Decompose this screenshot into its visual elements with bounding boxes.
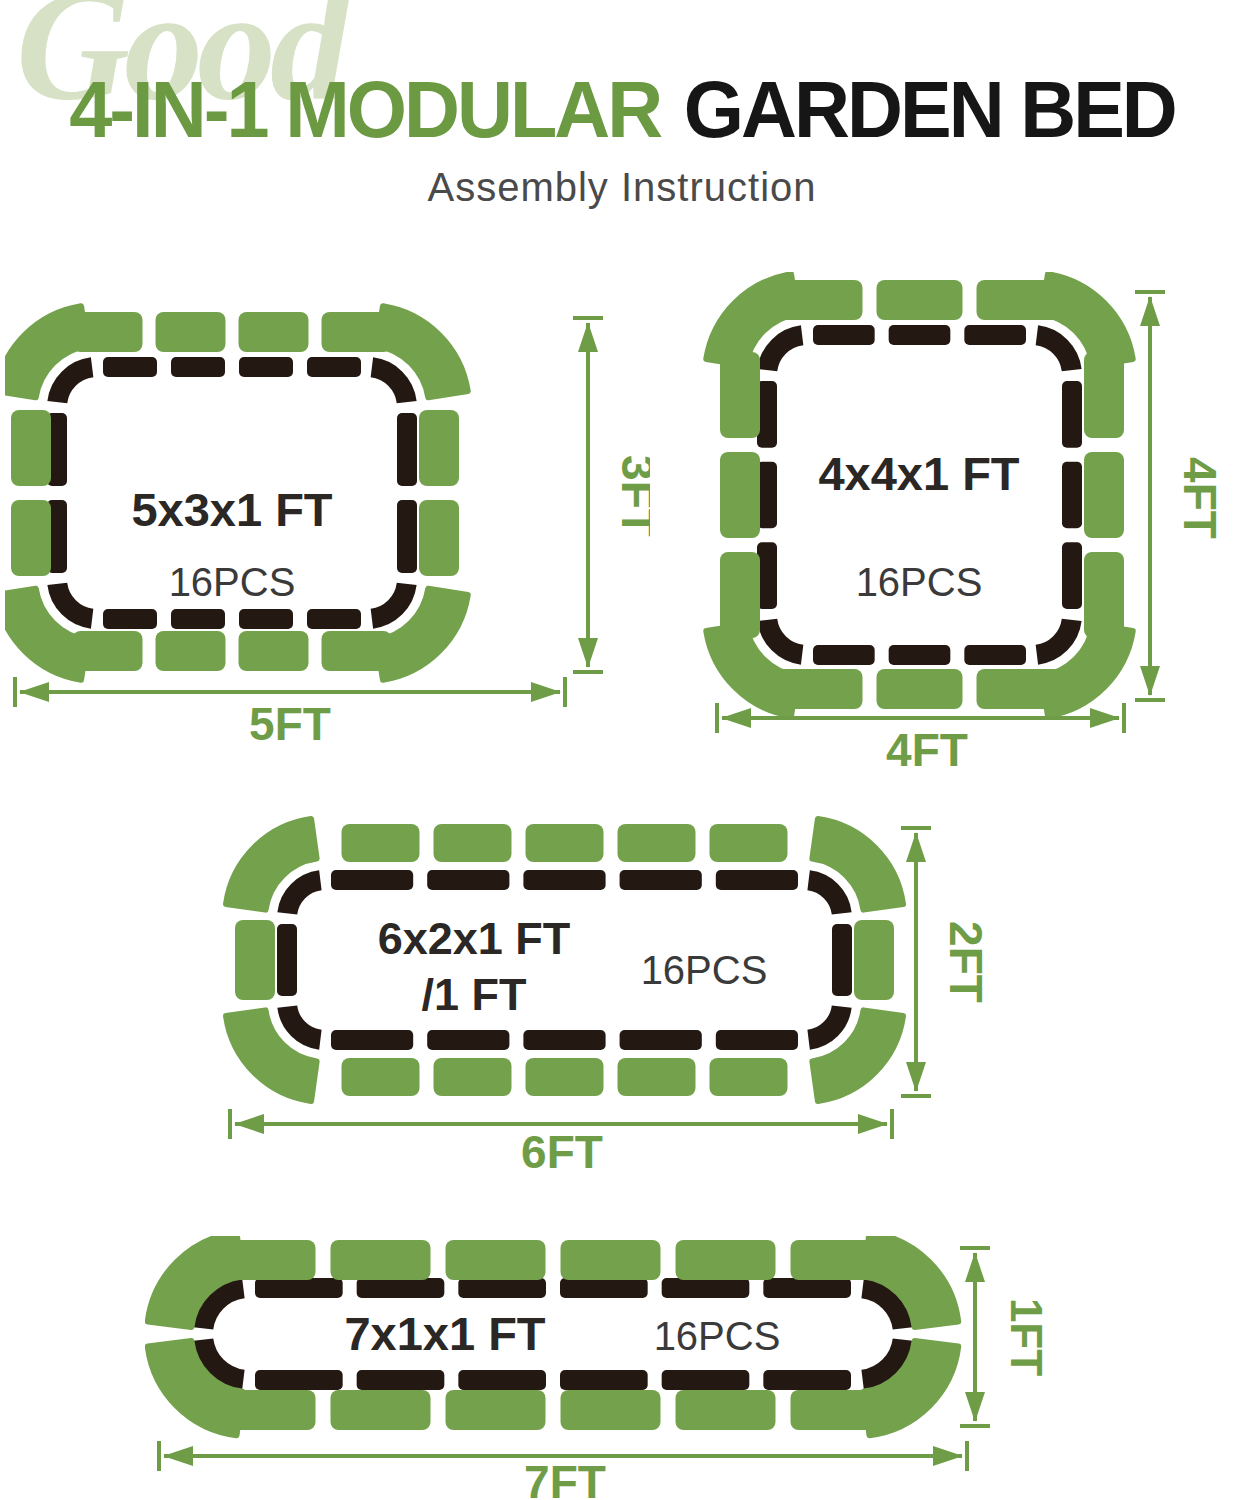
arrowhead-left-icon (721, 708, 751, 728)
border-dash (171, 357, 225, 377)
side-panel (331, 1240, 431, 1280)
side-panel (239, 312, 309, 352)
border-dash (620, 1030, 702, 1050)
side-panel (1084, 452, 1124, 538)
border-dash (763, 1278, 851, 1298)
width-dimension-label: 4FT (886, 724, 968, 776)
border-dash (662, 1370, 750, 1390)
side-panel (11, 410, 51, 486)
height-dimension-label: 4FT (1174, 457, 1226, 539)
page-title: 4-IN-1 MODULARGARDEN BED (12, 70, 1231, 149)
side-panel (11, 500, 51, 576)
pcs-label: 16PCS (654, 1314, 781, 1358)
bed-assembly: 4FT4FT4x4x1 FT16PCS (706, 274, 1226, 776)
border-dash (239, 609, 293, 629)
side-panel (419, 500, 459, 576)
corner-panel (148, 1236, 242, 1327)
border-dash (458, 1278, 546, 1298)
border-dash (716, 870, 798, 890)
border-corner-arc (372, 584, 407, 619)
width-dimension-label: 7FT (524, 1456, 606, 1500)
side-panel (526, 1058, 604, 1096)
side-panel (419, 410, 459, 486)
side-panel (676, 1390, 776, 1430)
border-dash (277, 924, 297, 996)
side-panel (561, 1390, 661, 1430)
size-label-line2: /1 FT (421, 969, 526, 1020)
size-label: 4x4x1 FT (818, 447, 1019, 500)
border-dash (307, 357, 361, 377)
bed-diagram-7x1ft: 1FT7FT7x1x1 FT16PCS (145, 1236, 1055, 1500)
border-dash (307, 609, 361, 629)
arrowhead-up-icon (1140, 296, 1160, 326)
border-dash (331, 870, 413, 890)
bed-assembly: 3FT5FT5x3x1 FT16PCS (5, 306, 650, 750)
border-corner-arc (809, 1007, 842, 1040)
arrowhead-right-icon (933, 1446, 963, 1466)
border-dash (889, 645, 951, 665)
side-panel (854, 920, 894, 1000)
border-corner-arc (57, 367, 92, 402)
border-dash (620, 870, 702, 890)
title-modular: 4-IN-1 MODULAR (69, 65, 660, 154)
height-dimension-label: 2FT (940, 921, 992, 1003)
border-dash (523, 1030, 605, 1050)
border-dash (813, 325, 875, 345)
border-dash (523, 870, 605, 890)
border-dash (1062, 381, 1082, 448)
subtitle: Assembly Instruction (0, 165, 1244, 210)
side-panel (342, 1058, 420, 1096)
border-corner-arc (57, 584, 92, 619)
height-dimension-label: 1FT (1002, 1298, 1051, 1376)
border-dash (255, 1278, 343, 1298)
arrowhead-down-icon (965, 1392, 985, 1422)
arrowhead-left-icon (163, 1446, 193, 1466)
pcs-label: 16PCS (856, 560, 983, 604)
border-dash (357, 1370, 445, 1390)
bed-assembly: 1FT7FT7x1x1 FT16PCS (148, 1236, 1051, 1500)
height-dimension-label: 3FT (612, 455, 650, 537)
arrowhead-up-icon (965, 1252, 985, 1282)
side-panel (446, 1390, 546, 1430)
pcs-label: 16PCS (169, 560, 296, 604)
border-dash (964, 645, 1026, 665)
side-panel (710, 824, 788, 862)
border-dash (716, 1030, 798, 1050)
title-garden-bed: GARDEN BED (684, 65, 1175, 154)
side-panel (331, 1390, 431, 1430)
side-panel (526, 824, 604, 862)
arrowhead-right-icon (858, 1114, 888, 1134)
side-panel (156, 631, 226, 671)
border-dash (662, 1278, 750, 1298)
border-dash (964, 325, 1026, 345)
border-dash (357, 1278, 445, 1298)
arrowhead-down-icon (578, 638, 598, 668)
corner-panel (864, 1236, 958, 1327)
border-dash (239, 357, 293, 377)
arrowhead-right-icon (1090, 708, 1120, 728)
arrowhead-left-icon (234, 1114, 264, 1134)
side-panel (434, 824, 512, 862)
side-panel (676, 1240, 776, 1280)
side-panel (618, 824, 696, 862)
border-corner-arc (767, 335, 802, 370)
border-corner-arc (372, 367, 407, 402)
border-dash (103, 357, 157, 377)
border-dash (889, 325, 951, 345)
side-panel (156, 312, 226, 352)
border-corner-arc (1037, 335, 1072, 370)
header: Good 4-IN-1 MODULARGARDEN BED Assembly I… (0, 70, 1244, 210)
side-panel (877, 280, 963, 320)
border-dash (763, 1370, 851, 1390)
border-corner-arc (767, 620, 802, 655)
size-label: 5x3x1 FT (131, 483, 332, 536)
side-panel (235, 920, 275, 1000)
arrowhead-up-icon (906, 832, 926, 862)
bed-diagram-6x2ft: 2FT6FT6x2x1 FT/1 FT16PCS (222, 812, 1002, 1184)
border-dash (397, 500, 417, 573)
border-dash (560, 1278, 648, 1298)
border-dash (427, 870, 509, 890)
side-panel (342, 824, 420, 862)
bed-assembly: 2FT6FT6x2x1 FT/1 FT16PCS (226, 819, 992, 1178)
side-panel (720, 452, 760, 538)
side-panel (618, 1058, 696, 1096)
border-dash (1062, 542, 1082, 609)
arrowhead-right-icon (531, 682, 561, 702)
border-dash (255, 1370, 343, 1390)
border-dash (331, 1030, 413, 1050)
border-dash (813, 645, 875, 665)
border-dash (458, 1370, 546, 1390)
corner-panel (148, 1341, 242, 1435)
border-corner-arc (809, 880, 842, 913)
corner-panel (864, 1341, 958, 1435)
border-corner-arc (1037, 620, 1072, 655)
arrowhead-down-icon (1140, 666, 1160, 696)
border-dash (427, 1030, 509, 1050)
pcs-label: 16PCS (641, 948, 768, 992)
side-panel (710, 1058, 788, 1096)
bed-diagram-4x4ft: 4FT4FT4x4x1 FT16PCS (692, 272, 1244, 780)
border-dash (397, 413, 417, 486)
side-panel (239, 631, 309, 671)
arrowhead-down-icon (906, 1062, 926, 1092)
side-panel (877, 669, 963, 709)
assembly-instruction-sheet: Good 4-IN-1 MODULARGARDEN BED Assembly I… (0, 0, 1244, 1500)
arrowhead-up-icon (578, 322, 598, 352)
size-label: 6x2x1 FT (378, 913, 571, 964)
border-dash (1062, 462, 1082, 529)
border-corner-arc (287, 880, 320, 913)
side-panel (446, 1240, 546, 1280)
border-dash (103, 609, 157, 629)
side-panel (561, 1240, 661, 1280)
border-dash (560, 1370, 648, 1390)
size-label: 7x1x1 FT (344, 1307, 545, 1360)
width-dimension-label: 5FT (249, 698, 331, 750)
width-dimension-label: 6FT (521, 1126, 603, 1178)
bed-diagram-5x3ft: 3FT5FT5x3x1 FT16PCS (5, 300, 650, 760)
border-corner-arc (287, 1007, 320, 1040)
arrowhead-left-icon (19, 682, 49, 702)
side-panel (434, 1058, 512, 1096)
border-dash (832, 924, 852, 996)
border-dash (171, 609, 225, 629)
